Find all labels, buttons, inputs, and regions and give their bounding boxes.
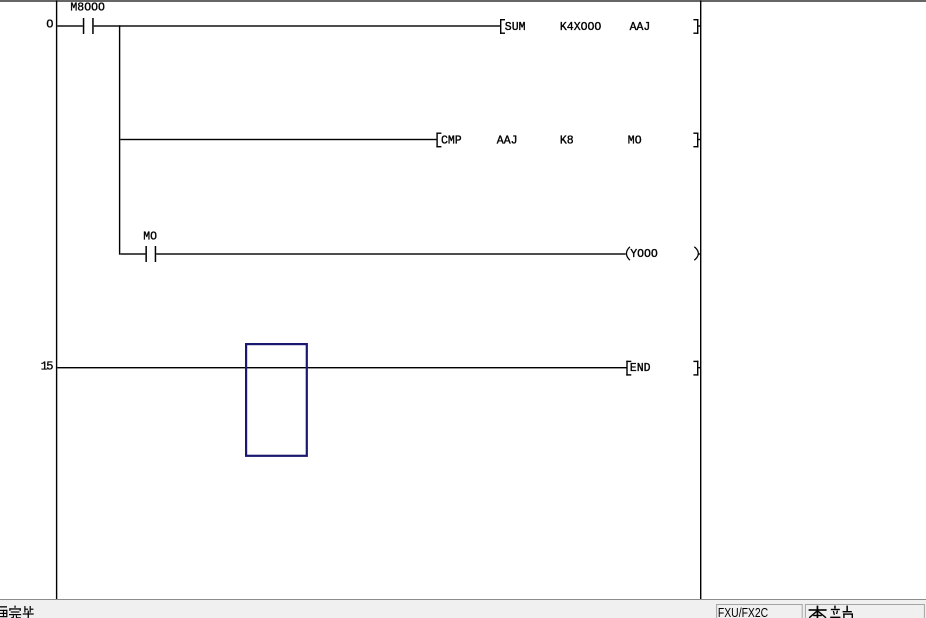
- svg-text:M8OOO: M8OOO: [70, 2, 105, 15]
- svg-text:SUM: SUM: [505, 21, 526, 34]
- svg-text:END: END: [630, 362, 651, 375]
- svg-text:K8: K8: [560, 135, 574, 148]
- svg-text:AAJ: AAJ: [630, 21, 651, 34]
- svg-text:CMP: CMP: [441, 135, 462, 148]
- svg-text:AAJ: AAJ: [497, 135, 518, 148]
- svg-text:MO: MO: [628, 135, 642, 148]
- svg-text:MO: MO: [143, 230, 157, 243]
- svg-text:YOOO: YOOO: [630, 248, 658, 261]
- svg-text:O: O: [46, 18, 53, 32]
- svg-text:K4XOOO: K4XOOO: [560, 21, 602, 34]
- svg-text:FXU/FX2C: FXU/FX2C: [718, 606, 769, 618]
- svg-text:15: 15: [41, 360, 54, 374]
